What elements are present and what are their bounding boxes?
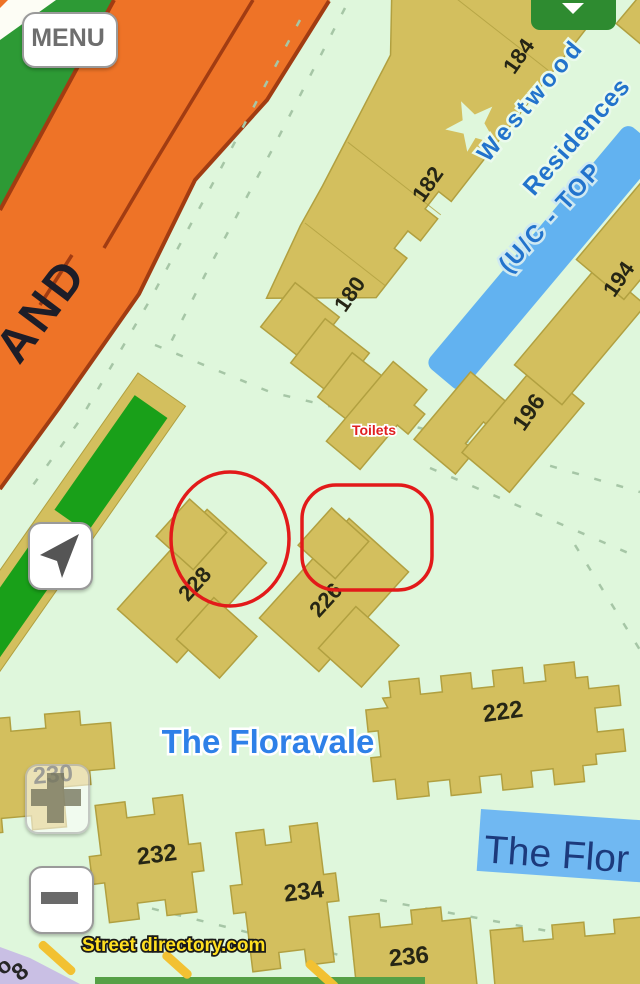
svg-text:232: 232 <box>135 839 178 871</box>
svg-text:222: 222 <box>481 696 524 728</box>
svg-text:The Floravale: The Floravale <box>162 723 375 760</box>
svg-text:Toilets: Toilets <box>352 422 396 438</box>
svg-text:234: 234 <box>282 876 326 908</box>
svg-text:Street directory.com: Street directory.com <box>82 935 265 956</box>
svg-text:236: 236 <box>388 941 431 972</box>
